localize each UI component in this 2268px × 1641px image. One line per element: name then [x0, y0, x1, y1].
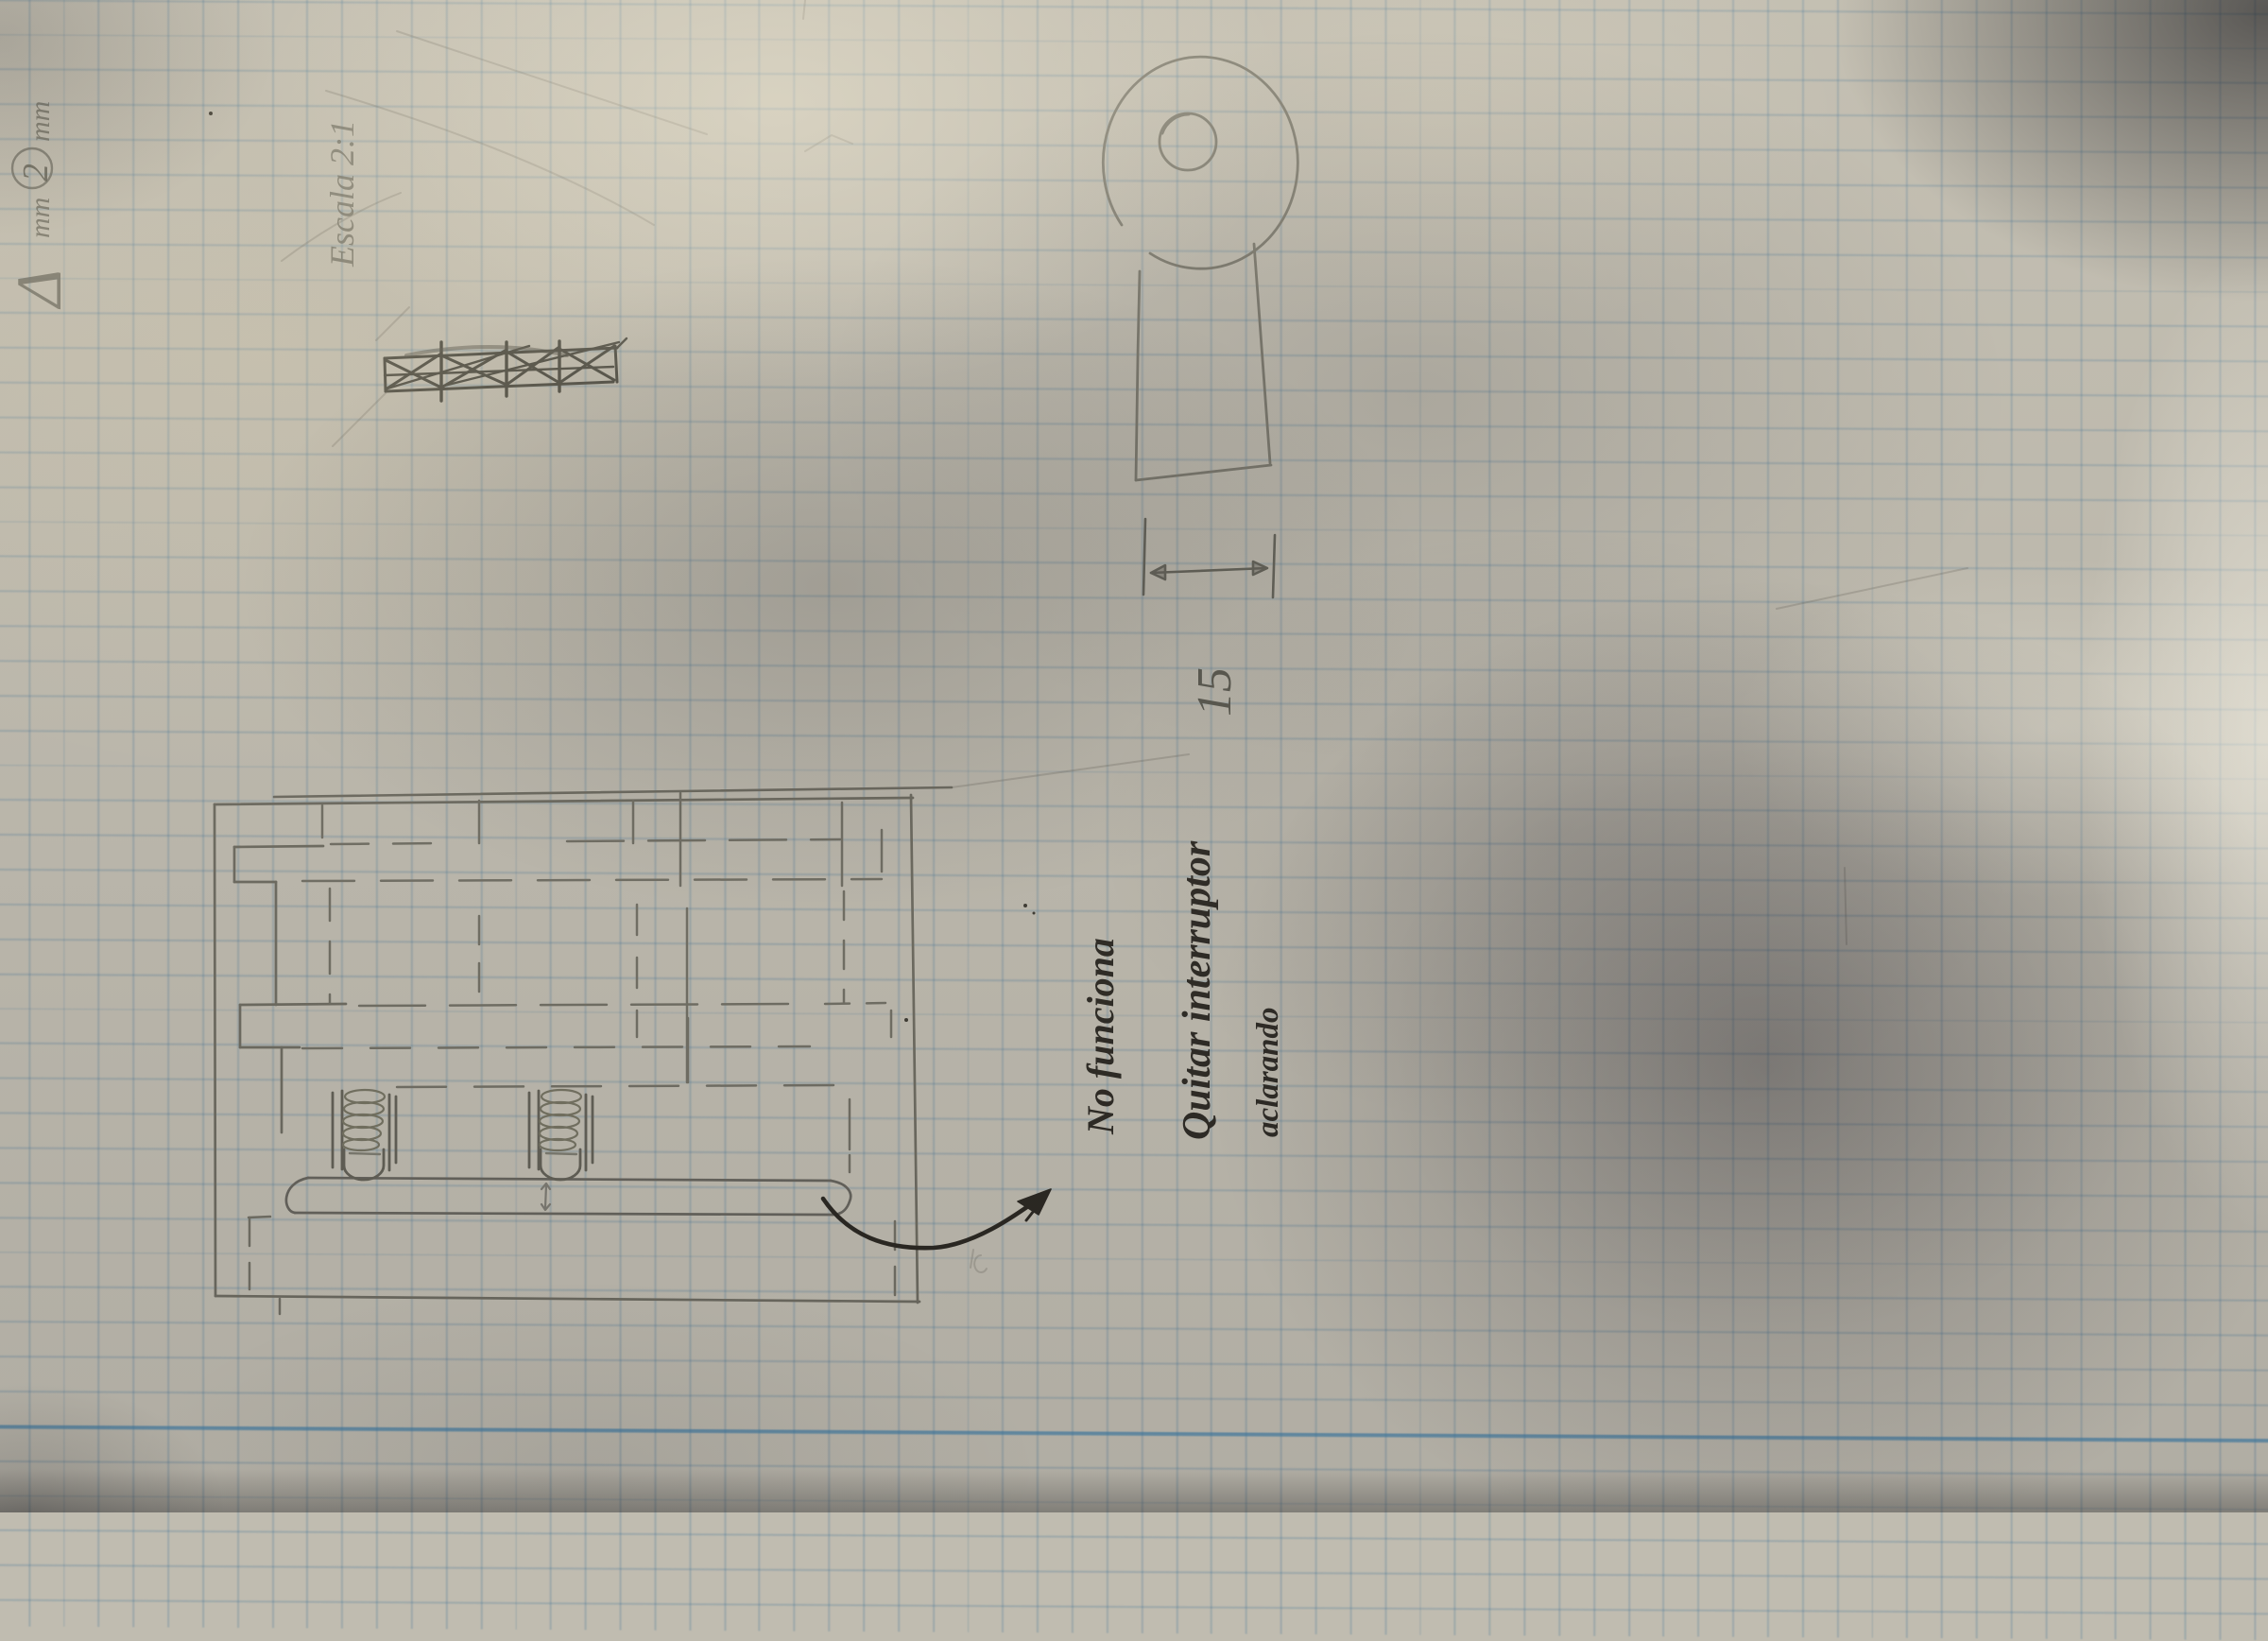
svg-text:Δ: Δ [3, 269, 75, 310]
svg-text:Escala 2:1: Escala 2:1 [323, 120, 361, 268]
svg-text:mm: mm [25, 101, 56, 142]
svg-text:15: 15 [1188, 667, 1242, 717]
svg-text:Quitar interruptor: Quitar interruptor [1176, 840, 1219, 1140]
svg-text:aclarando: aclarando [1251, 1007, 1285, 1137]
svg-text:No funciona: No funciona [1079, 938, 1122, 1135]
svg-text:mm: mm [25, 198, 56, 238]
svg-text:2: 2 [16, 164, 56, 181]
